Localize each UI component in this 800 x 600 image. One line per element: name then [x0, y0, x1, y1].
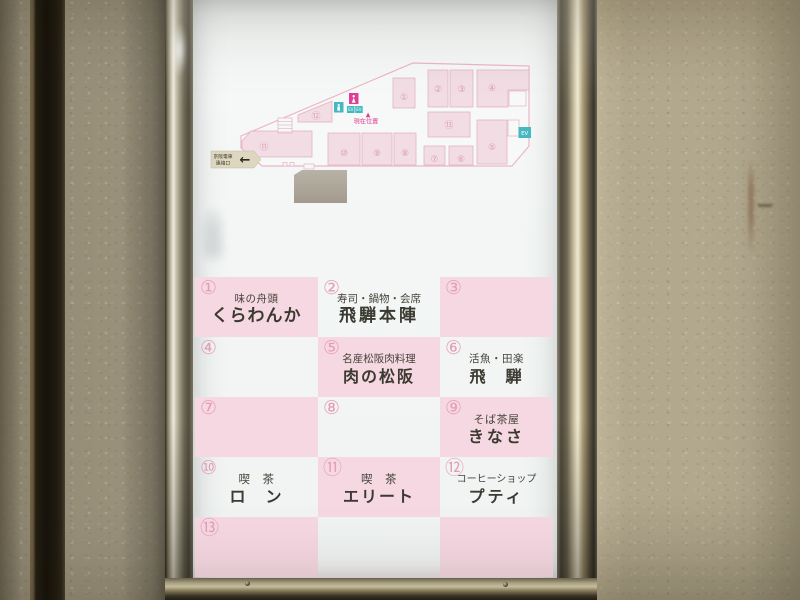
directory-cell-11: ⑪ 喫 茶 エリート — [318, 457, 440, 517]
directory-cell-13: ⑬ — [195, 517, 318, 577]
directory-cell-4: ④ — [195, 337, 318, 397]
directory-cell-9: ⑨ そば茶屋 きなさ — [440, 397, 553, 457]
wall-recess-strip — [30, 0, 65, 600]
directory-cell-7: ⑦ — [195, 397, 318, 457]
cell-genre: 名産松阪肉料理 — [342, 353, 416, 366]
elevator-label: EV — [348, 107, 354, 112]
directory-cell-2: ② 寿司・鍋物・会席 飛騨本陣 — [318, 277, 440, 337]
cell-genre: コーヒーショップ — [457, 473, 537, 486]
wall-rust-stain — [748, 160, 754, 255]
current-location-label: 現在位置 — [354, 118, 379, 126]
directory-cell-empty — [318, 517, 440, 577]
directory-cell-1: ① 味の舟頭 くらわんか — [195, 277, 318, 337]
frame-shading — [165, 0, 193, 600]
cell-name: 飛騨本陣 — [339, 307, 419, 326]
cell-genre: そば茶屋 — [474, 413, 520, 426]
map-room-7-number: ⑦ — [430, 155, 438, 165]
cell-name: 肉の松阪 — [343, 367, 415, 386]
right-wall-shading — [597, 0, 800, 600]
elevator-label: EV — [356, 107, 362, 112]
map-room-3-number: ③ — [457, 85, 465, 95]
map-stairs — [278, 118, 292, 133]
map-room-5-number: ⑤ — [488, 143, 496, 153]
map-door-mark — [290, 163, 294, 167]
cell-genre: 味の舟頭 — [235, 293, 279, 306]
directory-cell-empty — [440, 517, 553, 577]
directory-cell-5: ⑤ 名産松阪肉料理 肉の松阪 — [318, 337, 440, 397]
map-utility-room — [508, 120, 519, 136]
frame-screw — [245, 581, 250, 586]
cell-genre: 喫 茶 — [361, 473, 397, 486]
map-entry-bump — [304, 164, 314, 169]
frame-screw — [503, 582, 508, 587]
panel-reflection-smudge — [198, 236, 230, 266]
directory-cell-6: ⑥ 活魚・田楽 飛 騨 — [440, 337, 553, 397]
map-utility-room — [509, 91, 526, 106]
cell-name: プティ — [468, 487, 524, 506]
cell-name: きなさ — [468, 427, 525, 446]
cell-name: エリート — [343, 487, 415, 506]
station-exit-sign: 京阪電車 連絡口 ← — [211, 151, 261, 168]
left-arrow-icon: ← — [240, 153, 251, 168]
directory-cell-12: ⑫ コーヒーショップ プティ — [440, 457, 553, 517]
lightbox-frame-bottom — [165, 578, 597, 600]
map-room-8-number: ⑧ — [401, 149, 409, 159]
map-room-12-number: ⑫ — [311, 111, 320, 122]
photo-of-directory-lightbox: ① ② ③ ④ ⑤ ⑥ ⑦ ⑧ ⑨ ⑩ ⑪ ⑫ ⑬ EV — [0, 0, 800, 600]
taped-patch — [294, 170, 347, 203]
directory-cell-3: ③ — [440, 277, 553, 337]
map-room-2-number: ② — [434, 85, 442, 95]
cell-name: くらわんか — [212, 307, 302, 326]
directory-cell-10: ⑩ 喫 茶 ロ ン — [195, 457, 318, 517]
map-room-9-number: ⑨ — [373, 149, 381, 159]
frame-highlight — [171, 22, 187, 77]
cell-genre: 活魚・田楽 — [469, 353, 524, 366]
exit-sign-line2: 連絡口 — [216, 160, 231, 167]
cell-genre: 喫 茶 — [239, 473, 275, 486]
frame-shading — [557, 0, 597, 600]
map-room-11-number: ⑪ — [259, 142, 268, 153]
map-door-mark — [283, 163, 287, 167]
directory-cell-8: ⑧ — [318, 397, 440, 457]
left-wall-shading — [0, 0, 165, 600]
cell-name: ロ ン — [229, 487, 283, 506]
map-room-5 — [477, 120, 507, 164]
map-room-6-number: ⑥ — [457, 155, 465, 165]
map-room-4-number: ④ — [488, 84, 496, 94]
wall-mark — [758, 204, 772, 207]
cell-genre: 寿司・鍋物・会席 — [337, 293, 421, 306]
elevator-label: EV — [521, 131, 528, 137]
map-room-13-number: ⑬ — [444, 120, 453, 131]
floor-map: ① ② ③ ④ ⑤ ⑥ ⑦ ⑧ ⑨ ⑩ ⑪ ⑫ ⑬ EV — [205, 58, 545, 208]
cell-name: 飛 騨 — [469, 367, 523, 386]
restaurant-directory: ① 味の舟頭 くらわんか ② 寿司・鍋物・会席 飛騨本陣 ③ ④ — [195, 277, 553, 578]
current-location-marker: ▲ — [366, 112, 371, 119]
exit-sign-line1: 京阪電車 — [213, 153, 232, 160]
map-room-1-number: ① — [400, 93, 408, 103]
map-room-10-number: ⑩ — [340, 149, 348, 159]
